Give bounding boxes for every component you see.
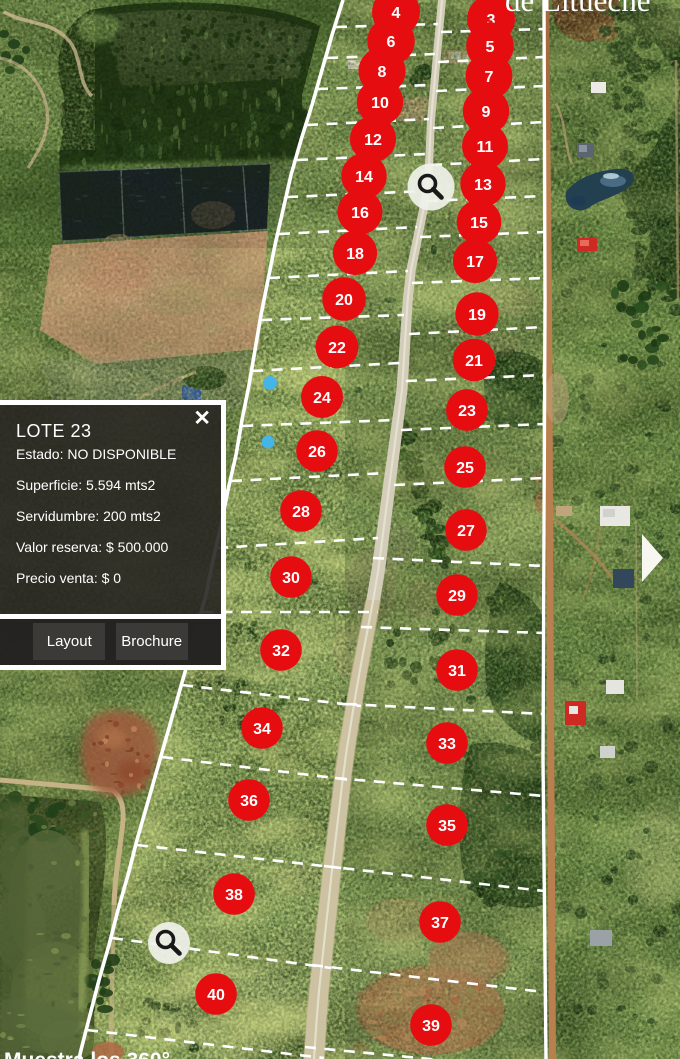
- svg-text:24: 24: [313, 390, 331, 407]
- svg-text:36: 36: [240, 793, 258, 810]
- svg-text:27: 27: [457, 523, 475, 540]
- svg-text:18: 18: [346, 246, 364, 263]
- svg-text:28: 28: [292, 504, 310, 521]
- svg-text:9: 9: [482, 104, 491, 121]
- svg-text:14: 14: [355, 169, 373, 186]
- svg-text:34: 34: [253, 721, 271, 738]
- svg-text:23: 23: [458, 403, 476, 420]
- svg-text:33: 33: [438, 736, 456, 753]
- svg-text:25: 25: [456, 460, 474, 477]
- svg-text:7: 7: [485, 69, 494, 86]
- svg-text:8: 8: [378, 64, 387, 81]
- svg-text:31: 31: [448, 663, 466, 680]
- svg-text:de Litueche: de Litueche: [505, 0, 650, 18]
- svg-text:17: 17: [466, 254, 484, 271]
- svg-text:26: 26: [308, 444, 326, 461]
- svg-text:22: 22: [328, 340, 346, 357]
- svg-text:29: 29: [448, 588, 466, 605]
- svg-text:15: 15: [470, 215, 488, 232]
- svg-text:32: 32: [272, 643, 290, 660]
- svg-text:13: 13: [474, 177, 492, 194]
- svg-text:20: 20: [335, 292, 353, 309]
- svg-text:30: 30: [282, 570, 300, 587]
- svg-text:Muestra los 360°: Muestra los 360°: [4, 1049, 170, 1059]
- svg-text:37: 37: [431, 915, 449, 932]
- svg-text:16: 16: [351, 205, 369, 222]
- svg-text:19: 19: [468, 307, 486, 324]
- svg-text:35: 35: [438, 818, 456, 835]
- svg-text:11: 11: [477, 139, 494, 156]
- svg-text:12: 12: [364, 132, 382, 149]
- svg-text:38: 38: [225, 887, 243, 904]
- svg-text:10: 10: [371, 95, 389, 112]
- svg-text:21: 21: [465, 353, 483, 370]
- svg-text:40: 40: [207, 987, 225, 1004]
- svg-text:39: 39: [422, 1018, 440, 1035]
